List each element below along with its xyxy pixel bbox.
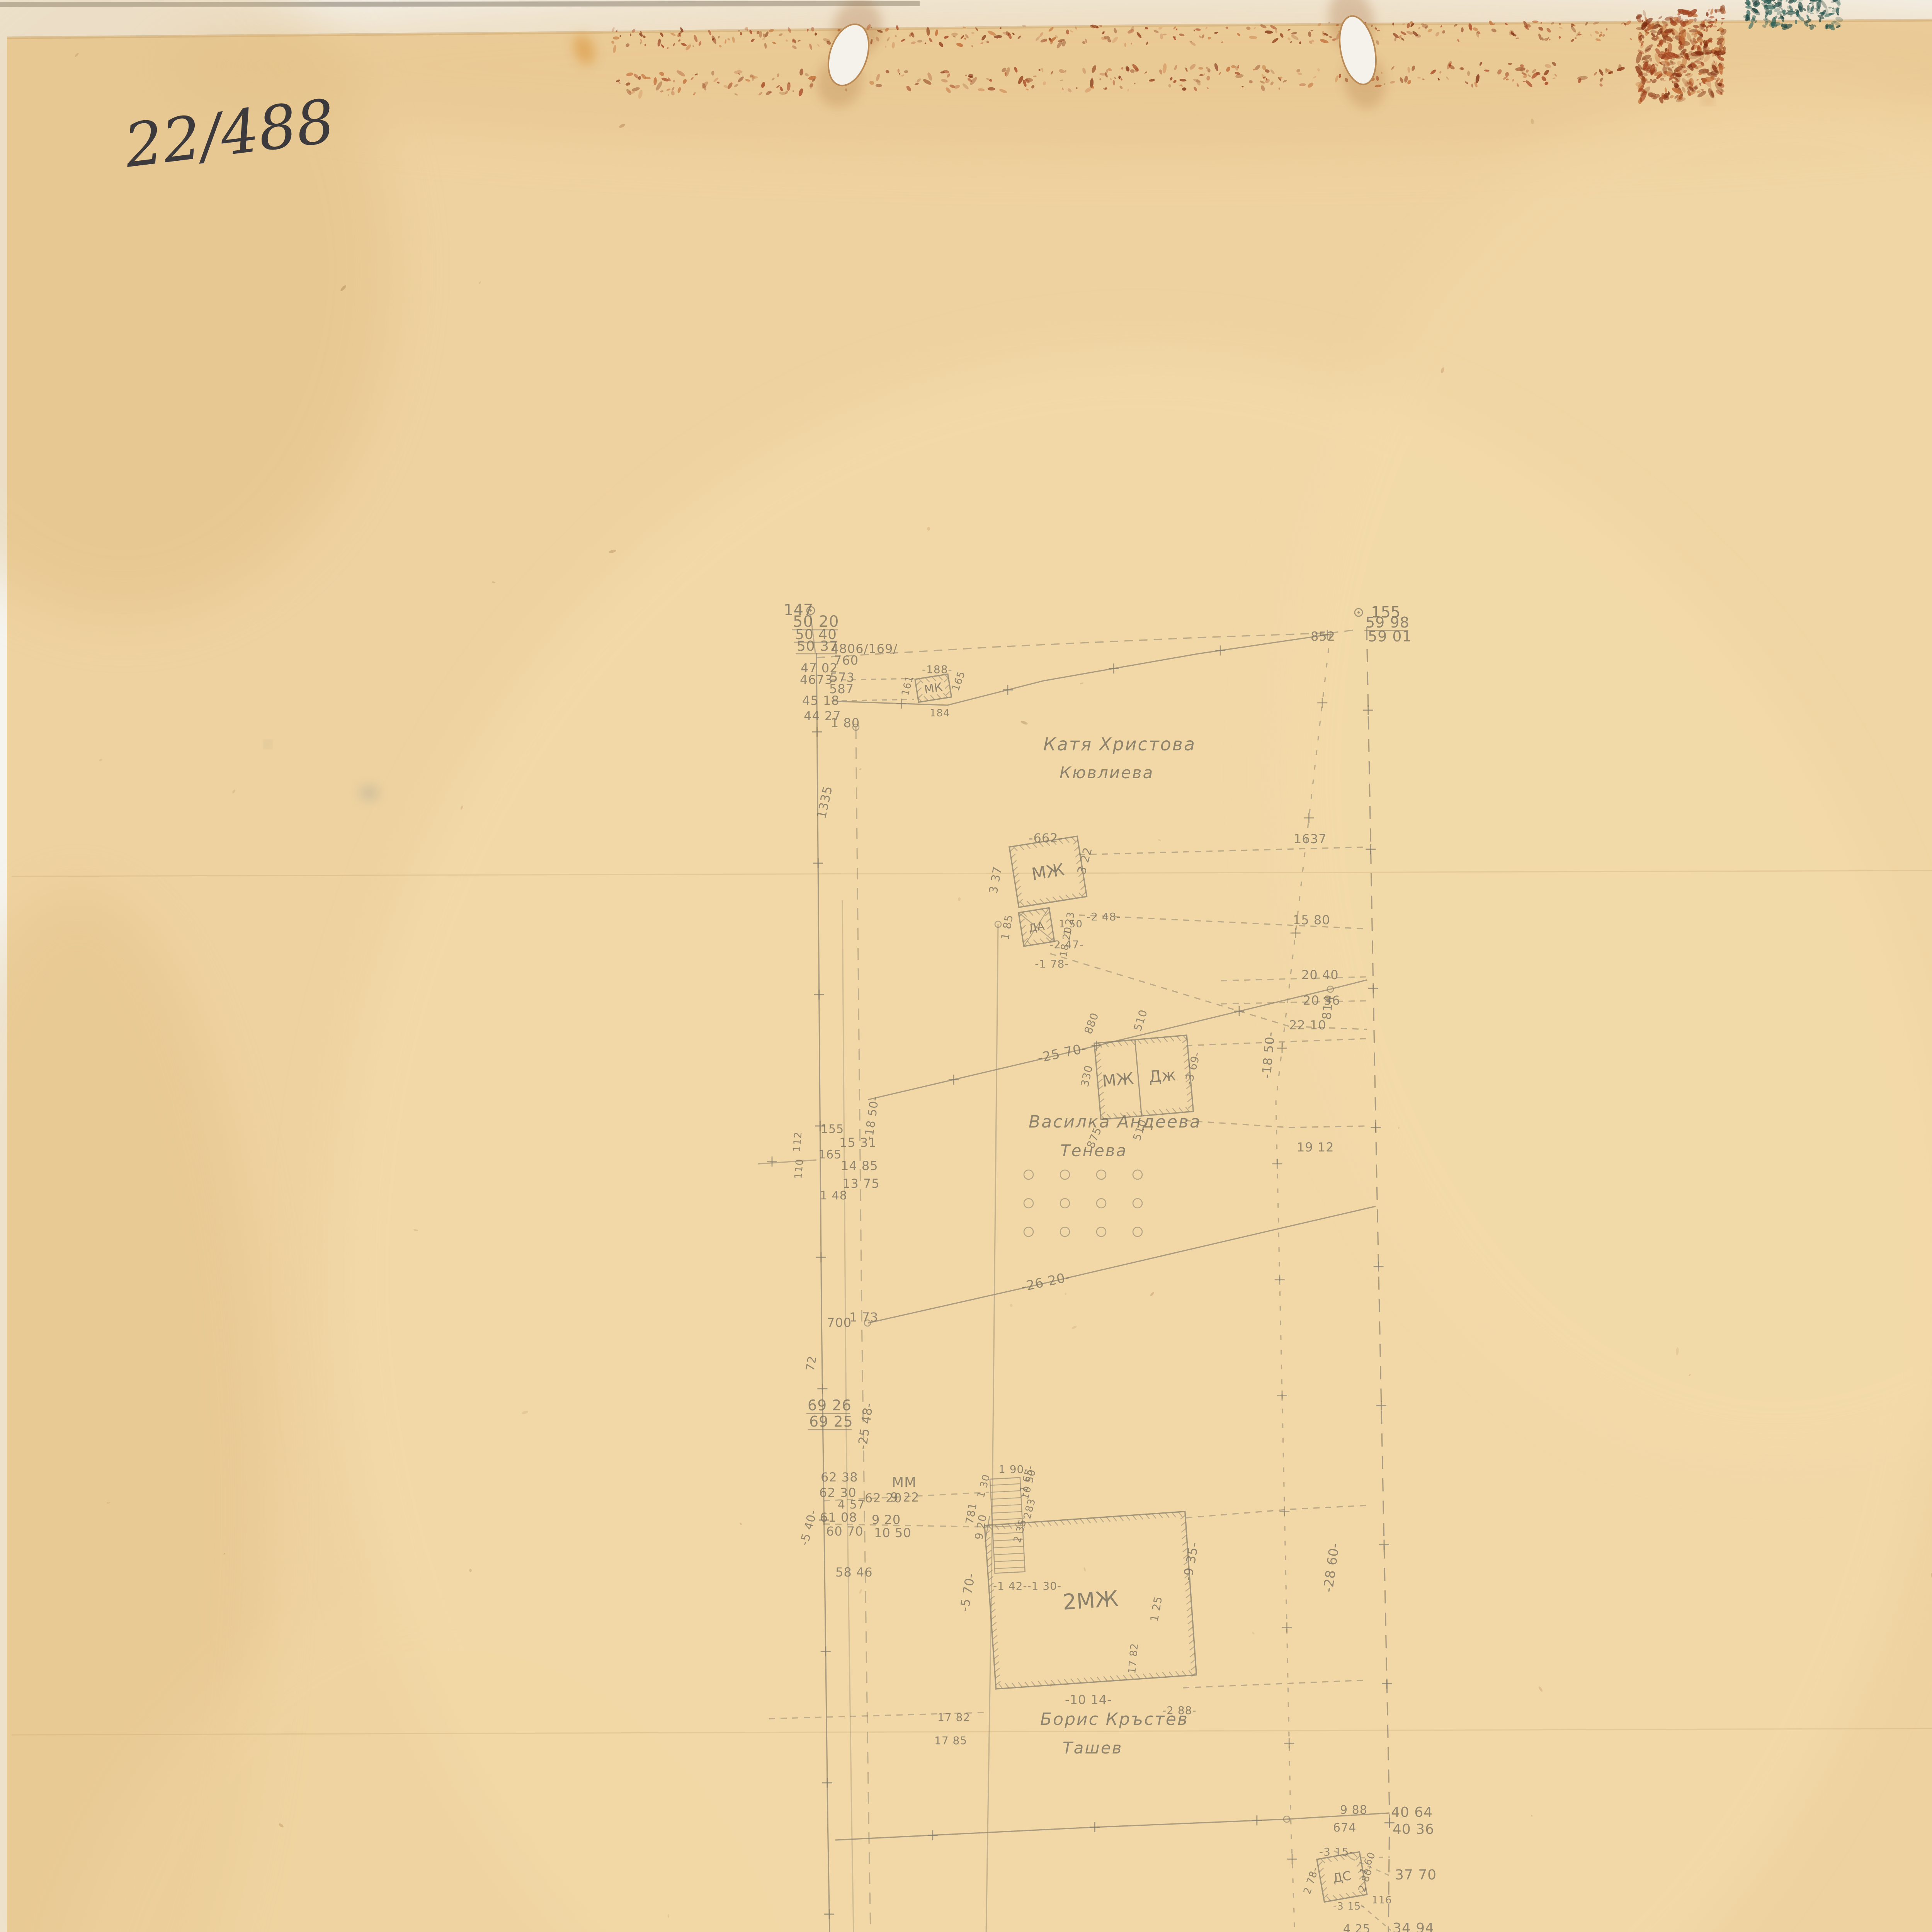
svg-text:1 48: 1 48 — [820, 1189, 847, 1202]
svg-text:22 10: 22 10 — [1289, 1018, 1327, 1032]
measurement-label: 165 — [818, 1148, 842, 1162]
measurement-label: 22 10 — [1289, 1018, 1327, 1032]
svg-text:116: 116 — [1372, 1895, 1392, 1906]
scanned-survey-sheet: МКМЖДАМЖДж2МЖДСМЖ147155637750 2050 4050 … — [0, 0, 1932, 1932]
svg-text:1 73: 1 73 — [849, 1310, 878, 1325]
svg-text:-3 15-: -3 15- — [1319, 1845, 1354, 1858]
svg-text:112: 112 — [791, 1131, 804, 1153]
measurement-label: -3 15- — [1333, 1901, 1365, 1912]
parcel-owner-label: Борис Кръстев — [1040, 1709, 1189, 1729]
svg-text:40 64: 40 64 — [1391, 1804, 1433, 1820]
svg-text:9 20: 9 20 — [872, 1512, 901, 1527]
measurement-label: 10 50 — [874, 1526, 912, 1540]
svg-text:ММ: ММ — [892, 1475, 917, 1490]
measurement-label: 61 08 — [820, 1510, 857, 1525]
measurement-label: 19 12 — [1297, 1140, 1334, 1155]
svg-text:34 94: 34 94 — [1393, 1920, 1434, 1932]
svg-text:674: 674 — [1333, 1821, 1356, 1835]
svg-text:9 88: 9 88 — [1340, 1803, 1367, 1817]
svg-text:4673: 4673 — [800, 672, 833, 687]
measurement-label: 40 64 — [1391, 1804, 1433, 1820]
building-label: ДС — [1332, 1868, 1352, 1886]
svg-text:852: 852 — [1311, 629, 1335, 644]
measurement-label: 58 46 — [835, 1565, 873, 1580]
stain-blob — [359, 785, 379, 801]
svg-text:-10 14-: -10 14- — [1065, 1692, 1112, 1707]
building-label: ДА — [1028, 920, 1046, 935]
measurement-label: -1 78- — [1035, 957, 1069, 970]
measurement-label: 814 — [1319, 995, 1336, 1020]
measurement-label: 17 82 — [937, 1711, 970, 1724]
measurement-label: 184 — [930, 707, 950, 719]
svg-text:61 08: 61 08 — [820, 1510, 857, 1525]
svg-text:14 85: 14 85 — [841, 1158, 878, 1173]
measurement-label: 40 36 — [1393, 1821, 1434, 1837]
svg-text:72: 72 — [803, 1355, 819, 1372]
svg-text:184: 184 — [930, 707, 950, 719]
svg-text:165: 165 — [818, 1148, 842, 1162]
parcel-owner-label: Катя Христова — [1043, 734, 1196, 755]
svg-text:814: 814 — [1319, 995, 1336, 1020]
svg-text:1 80: 1 80 — [831, 716, 860, 730]
svg-text:700: 700 — [827, 1315, 852, 1330]
measurement-label: 110 — [793, 1158, 806, 1180]
svg-text:58 46: 58 46 — [835, 1565, 873, 1580]
measurement-label: 674 — [1333, 1821, 1356, 1835]
measurement-label: 4 25 — [1343, 1922, 1371, 1932]
measurement-label: -3 15- — [1319, 1845, 1354, 1858]
measurement-label: 34 94 — [1393, 1920, 1434, 1932]
stain-blob — [1704, 98, 1712, 103]
measurement-label: 4673 — [800, 672, 833, 687]
svg-text:59 01: 59 01 — [1368, 628, 1412, 645]
svg-text:20 40: 20 40 — [1301, 968, 1339, 982]
svg-text:-3 15-: -3 15- — [1333, 1901, 1365, 1912]
building-label: 2МЖ — [1062, 1586, 1119, 1615]
svg-text:-2 48-: -2 48- — [1087, 910, 1121, 923]
measurement-label: 700 — [827, 1315, 852, 1330]
sheet-canvas: МКМЖДАМЖДж2МЖДСМЖ147155637750 2050 4050 … — [0, 0, 1932, 1932]
svg-text:15 80: 15 80 — [1293, 913, 1330, 927]
svg-text:-1 78-: -1 78- — [1035, 957, 1069, 970]
measurement-label: 37 70 — [1395, 1867, 1437, 1883]
measurement-label: 1637 — [1294, 832, 1327, 846]
building-label: МК — [923, 680, 943, 697]
measurement-label: 62 38 — [821, 1470, 858, 1485]
svg-text:62 38: 62 38 — [821, 1470, 858, 1485]
parcel-owner-label: Василка Андеева — [1029, 1112, 1201, 1132]
measurement-label: 112 — [791, 1131, 804, 1153]
measurement-label: 59 01 — [1368, 628, 1412, 645]
measurement-label: 20 40 — [1301, 968, 1339, 982]
measurement-label: -10 14- — [1065, 1692, 1112, 1707]
measurement-label: 1 80 — [831, 716, 860, 730]
parcel-owner-label: Тенева — [1060, 1141, 1127, 1160]
measurement-label: 1 73 — [849, 1310, 878, 1325]
measurement-label: -1 42--1 30- — [993, 1580, 1061, 1592]
measurement-label: 9 20 — [872, 1512, 901, 1527]
measurement-label: ММ — [892, 1475, 917, 1490]
measurement-label: 72 — [803, 1355, 819, 1372]
parcel-owner-label: Ташев — [1063, 1738, 1122, 1757]
building-label: МЖ — [1102, 1069, 1134, 1090]
measurement-label: 852 — [1311, 629, 1335, 644]
svg-text:45 18: 45 18 — [802, 693, 840, 708]
measurement-label: 1 48 — [820, 1189, 847, 1202]
svg-text:4 57: 4 57 — [838, 1498, 865, 1512]
svg-text:1637: 1637 — [1294, 832, 1327, 846]
measurement-label: 69 25 — [808, 1413, 853, 1430]
svg-text:19 12: 19 12 — [1297, 1140, 1334, 1155]
svg-text:10 50: 10 50 — [874, 1526, 912, 1540]
measurement-label: 45 18 — [802, 693, 840, 708]
svg-text:13 75: 13 75 — [842, 1176, 880, 1191]
measurement-label: 14 85 — [841, 1158, 878, 1173]
measurement-label: 9 22 — [890, 1490, 919, 1505]
svg-text:40 36: 40 36 — [1393, 1821, 1434, 1837]
measurement-label: 69 26 — [806, 1397, 852, 1414]
measurement-label: 4 57 — [838, 1498, 865, 1512]
building-label: Дж — [1148, 1065, 1177, 1087]
measurement-label: -188- — [922, 663, 952, 676]
measurement-label: 17 85 — [934, 1734, 967, 1747]
svg-text:4 25: 4 25 — [1343, 1922, 1371, 1932]
measurement-label: -2 48- — [1087, 910, 1121, 923]
measurement-label: -662- — [1029, 831, 1063, 845]
svg-text:110: 110 — [793, 1158, 806, 1180]
svg-text:69 25: 69 25 — [809, 1413, 853, 1430]
stain-blob — [265, 742, 270, 747]
svg-text:-188-: -188- — [922, 663, 952, 676]
measurement-label: 13 75 — [842, 1176, 880, 1191]
measurement-label: 9 88 — [1340, 1803, 1367, 1817]
measurement-label: 116 — [1372, 1895, 1392, 1906]
svg-text:17 85: 17 85 — [934, 1734, 967, 1747]
measurement-label: 155 — [821, 1122, 844, 1136]
svg-text:69 26: 69 26 — [808, 1397, 852, 1414]
svg-text:-1 42--1 30-: -1 42--1 30- — [993, 1580, 1061, 1592]
svg-text:60 70: 60 70 — [826, 1524, 864, 1539]
svg-text:37 70: 37 70 — [1395, 1867, 1437, 1883]
svg-text:17 82: 17 82 — [937, 1711, 970, 1724]
svg-text:-662-: -662- — [1029, 831, 1063, 845]
parcel-owner-label: Кювлиева — [1060, 763, 1154, 782]
measurement-label: 15 80 — [1293, 913, 1330, 927]
svg-text:155: 155 — [821, 1122, 844, 1136]
measurement-label: 60 70 — [826, 1524, 864, 1539]
svg-text:9 22: 9 22 — [890, 1490, 919, 1505]
